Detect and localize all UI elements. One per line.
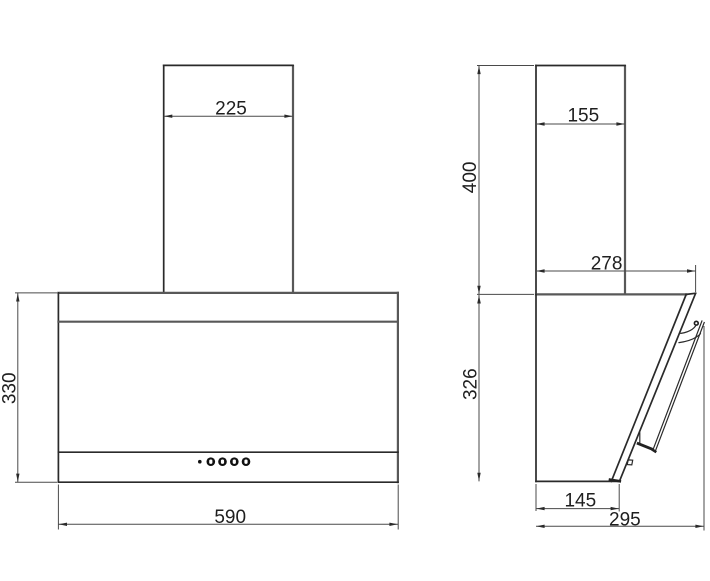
svg-text:330: 330 [0,372,21,404]
svg-text:155: 155 [567,106,599,127]
svg-text:278: 278 [591,253,623,274]
svg-text:225: 225 [215,99,247,120]
svg-text:400: 400 [460,162,481,194]
svg-text:145: 145 [564,491,596,512]
svg-text:590: 590 [214,507,246,528]
svg-text:326: 326 [460,368,481,400]
svg-text:295: 295 [609,509,641,530]
